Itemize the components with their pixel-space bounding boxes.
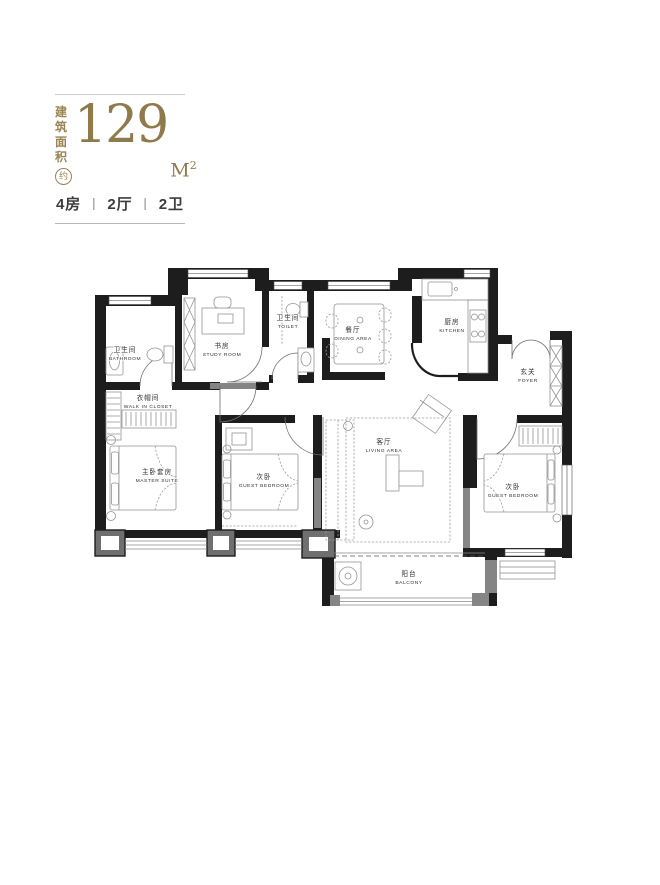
svg-text:卫生间: 卫生间 [114, 345, 137, 354]
svg-text:阳台: 阳台 [401, 569, 416, 578]
svg-text:客厅: 客厅 [376, 437, 391, 446]
svg-text:FOYER: FOYER [518, 378, 538, 384]
living-furniture [326, 395, 451, 542]
svg-text:TOILET: TOILET [278, 324, 298, 330]
room-label-bathroom: 卫生间 BATHROOM [109, 345, 141, 362]
room-label-study-room: 书房 STUDY ROOM [203, 341, 242, 358]
area-label-line2: 面积 [55, 135, 72, 165]
svg-text:BATHROOM: BATHROOM [109, 356, 141, 362]
svg-text:次卧: 次卧 [256, 472, 271, 481]
area-header: 建筑 面积 约 129 M2 4房 丨 2厅 丨 2卫 [55, 94, 185, 224]
study-furniture [184, 297, 244, 370]
svg-text:KITCHEN: KITCHEN [439, 328, 464, 334]
separator: 丨 [139, 194, 153, 213]
rooms-count: 4房 [56, 193, 81, 214]
area-label-block: 建筑 面积 约 [55, 105, 72, 185]
svg-text:次卧: 次卧 [505, 482, 520, 491]
svg-text:LIVING AREA: LIVING AREA [366, 448, 403, 454]
unit-sup: 2 [190, 159, 197, 172]
baths-count: 2卫 [159, 193, 184, 214]
svg-text:BALCONY: BALCONY [395, 580, 422, 586]
area-unit: M2 [170, 160, 196, 180]
area-label-line1: 建筑 [55, 105, 72, 135]
halls-count: 2厅 [107, 193, 132, 214]
svg-text:主卧套房: 主卧套房 [142, 467, 172, 476]
svg-text:餐厅: 餐厅 [345, 325, 360, 334]
svg-text:STUDY ROOM: STUDY ROOM [203, 352, 242, 358]
room-label-walk-in-closet: 衣帽间 WALK IN CLOSET [124, 393, 173, 410]
svg-text:卫生间: 卫生间 [277, 313, 300, 322]
dining-furniture [326, 304, 391, 364]
room-label-toilet: 卫生间 TOILET [277, 313, 300, 330]
svg-text:GUEST BEDROOM: GUEST BEDROOM [488, 493, 539, 499]
master-bed [107, 436, 177, 521]
layout-summary: 4房 丨 2厅 丨 2卫 [55, 193, 185, 214]
room-label-foyer: 玄关 FOYER [518, 367, 538, 384]
room-label-balcony: 阳台 BALCONY [395, 569, 422, 586]
separator: 丨 [87, 194, 101, 213]
svg-text:玄关: 玄关 [520, 367, 535, 376]
kitchen-counters [422, 279, 488, 373]
guest-bedroom-right-furniture [484, 426, 562, 522]
foyer-cabinet [550, 346, 562, 406]
approx-badge: 约 [55, 168, 72, 185]
svg-text:书房: 书房 [214, 341, 229, 350]
area-value: 129 [74, 102, 167, 150]
room-label-master-suite: 主卧套房 MASTER SUITE [136, 467, 179, 484]
svg-text:MASTER SUITE: MASTER SUITE [136, 478, 179, 484]
svg-text:衣帽间: 衣帽间 [137, 393, 160, 402]
svg-text:GUEST BEDROOM: GUEST BEDROOM [239, 483, 290, 489]
svg-text:DINING AREA: DINING AREA [334, 336, 372, 342]
room-label-kitchen: 厨房 KITCHEN [439, 317, 464, 334]
floor-plan: 卫生间 BATHROOM 书房 STUDY ROOM 卫生间 TOILET 餐厅… [60, 250, 600, 630]
svg-text:WALK IN CLOSET: WALK IN CLOSET [124, 404, 173, 410]
balcony-washer [335, 562, 361, 590]
room-label-living-area: 客厅 LIVING AREA [366, 437, 403, 454]
unit-m: M [170, 159, 189, 181]
svg-text:厨房: 厨房 [444, 317, 459, 326]
